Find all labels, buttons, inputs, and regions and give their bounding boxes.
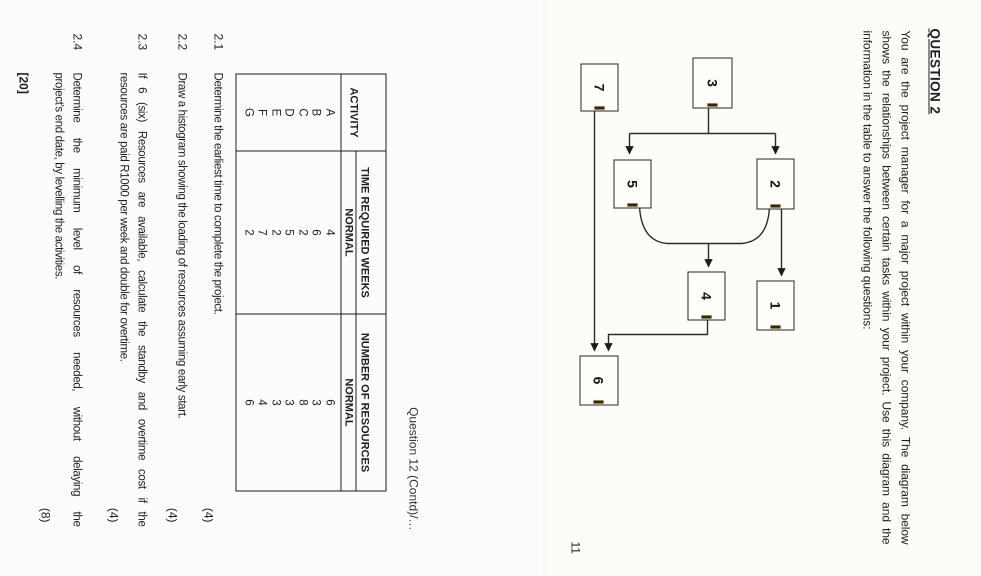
task-node-label: 7 [591,83,607,91]
cell-time: 7 [254,151,268,314]
task-node-2: 2 [756,158,794,209]
cell-activity: F [254,74,268,151]
page-11: QUESTION 2 You are the project manager f… [543,0,981,576]
question-number: 2.1 [211,33,225,50]
scanned-document: QUESTION 2 You are the project manager f… [0,0,981,576]
cell-time: 2 [295,151,309,314]
question-line: Determine the minimum level of resources… [67,72,85,526]
page-number: 11 [568,541,582,553]
question-line: Determine the earliest time to complete … [208,72,226,526]
scan-mark [594,400,604,403]
cell-time: 2 [236,151,254,314]
question-marks: (4) [106,507,120,522]
question-number: 2.3 [135,33,149,50]
cell-activity: C [295,74,309,151]
scan-mark [707,103,717,106]
task-node-label: 5 [624,180,640,188]
cell-resources: 8 [295,314,309,491]
question-marks: (8) [38,507,52,522]
cell-time: 4 [322,151,341,314]
question-marks: (4) [165,507,179,522]
precedence-diagram: 3 2 1 5 4 [543,0,981,576]
cell-time: 2 [268,151,282,314]
task-node-label: 6 [591,376,607,384]
question-text: Draw a histogram showing the loading of … [172,72,190,526]
task-node-label: 2 [767,180,783,188]
task-node-label: 1 [767,301,783,309]
question-line: resources are paid R1000 per week and do… [114,72,132,526]
cell-resources: 6 [322,314,341,491]
cell-resources: 6 [236,314,254,491]
contd-note: Question 12 (Contd)/… [406,407,420,530]
edge-3-branch [629,106,775,133]
task-node-5: 5 [613,159,651,208]
cell-time: 5 [281,151,295,314]
task-node-label: 3 [704,79,720,87]
task-node-7: 7 [580,63,618,111]
cell-activity: E [268,74,282,151]
cell-activity: G [236,74,254,151]
resources-table: ACTIVITY TIME REQUIRED WEEKS NUMBER OF R… [236,73,387,491]
edge-2-4 [708,207,769,243]
col-header-activity: ACTIVITY [341,74,386,151]
scan-mark [770,325,780,328]
rotated-page-stack: QUESTION 2 You are the project manager f… [0,0,981,576]
question-number: 2.4 [70,33,84,50]
table-row: A 4 6 [322,74,341,491]
cell-resources: 3 [308,314,322,491]
cell-resources: 3 [281,314,295,491]
scan-mark [594,106,604,109]
cell-resources: 3 [268,314,282,491]
col-header-resources: NUMBER OF RESOURCES [356,314,386,491]
cell-time: 6 [308,151,322,314]
question-line: Draw a histogram showing the loading of … [172,72,190,526]
cell-resources: 4 [254,314,268,491]
scan-mark [770,204,780,207]
task-node-3: 3 [692,57,732,108]
cell-activity: D [281,74,295,151]
question-line: If 6 (six) Resources are available, calc… [132,72,150,526]
task-node-1: 1 [756,280,794,330]
question-number: 2.2 [175,33,189,50]
table-row: G 2 6 [236,74,254,491]
edge-4-6 [608,318,707,350]
subheader-normal: NORMAL [341,151,356,314]
question-text: If 6 (six) Resources are available, calc… [114,72,149,526]
question-line: project's end date, by levelling the act… [49,72,67,526]
table-row: D 5 3 [281,74,295,491]
task-node-4: 4 [687,271,725,320]
table-row: E 2 3 [268,74,282,491]
subheader-normal: NORMAL [341,314,356,491]
col-header-time: TIME REQUIRED WEEKS [356,151,386,314]
edge-5-4 [639,206,708,243]
question-text: Determine the earliest time to complete … [208,72,226,526]
table-row: B 6 3 [308,74,322,491]
scan-mark [701,315,711,318]
question-marks: (4) [201,507,215,522]
cell-activity: A [322,74,341,151]
cell-activity: B [308,74,322,151]
task-node-label: 4 [698,292,714,300]
table-row: C 2 8 [295,74,309,491]
task-node-6: 6 [579,355,618,405]
table-row: F 7 4 [254,74,268,491]
scan-mark [627,203,637,206]
total-marks: [20] [16,72,30,93]
question-text: Determine the minimum level of resources… [49,72,84,526]
